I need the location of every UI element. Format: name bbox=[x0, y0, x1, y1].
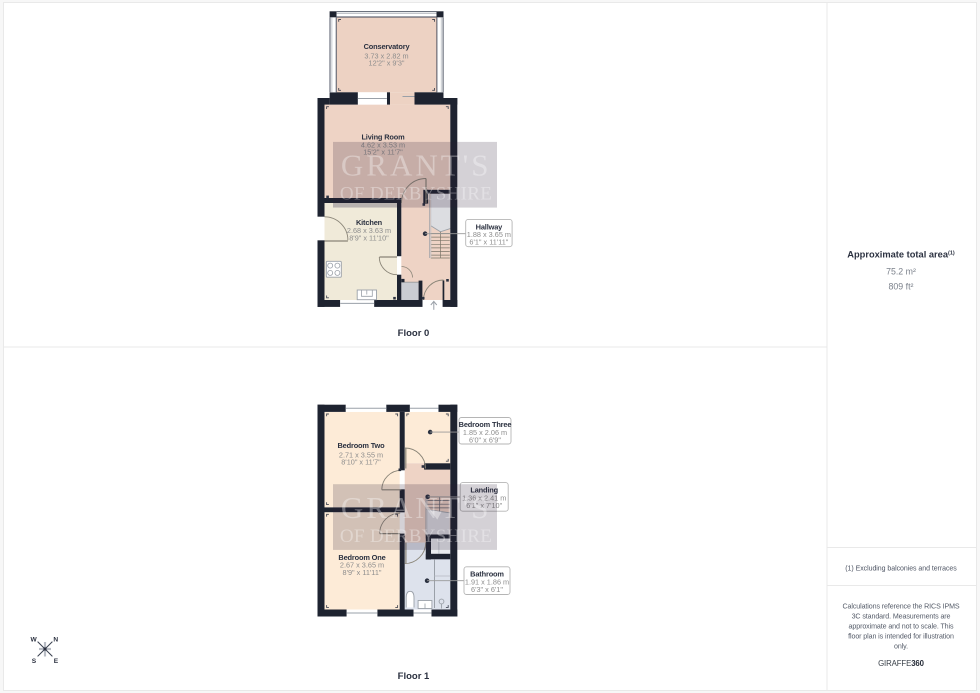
svg-text:3C standard. Measurements are: 3C standard. Measurements are bbox=[852, 612, 951, 620]
svg-text:Floor 0: Floor 0 bbox=[398, 328, 430, 339]
svg-text:only.: only. bbox=[894, 643, 908, 651]
svg-text:Floor 1: Floor 1 bbox=[398, 671, 430, 682]
svg-text:S: S bbox=[32, 658, 37, 665]
svg-text:8'9" x 11'11": 8'9" x 11'11" bbox=[343, 568, 382, 577]
svg-text:12'2" x 9'3": 12'2" x 9'3" bbox=[369, 59, 405, 68]
svg-text:W: W bbox=[30, 636, 37, 643]
svg-text:8'10" x 11'7": 8'10" x 11'7" bbox=[341, 458, 381, 467]
svg-text:809 ft²: 809 ft² bbox=[889, 282, 914, 292]
svg-text:(1) Excluding balconies and te: (1) Excluding balconies and terraces bbox=[845, 565, 957, 572]
svg-text:Calculations reference the RIC: Calculations reference the RICS IPMS bbox=[842, 602, 959, 610]
svg-text:6'0" x 6'9": 6'0" x 6'9" bbox=[469, 435, 501, 444]
svg-text:GRANT'S: GRANT'S bbox=[341, 490, 492, 525]
svg-text:6'3" x 6'1": 6'3" x 6'1" bbox=[471, 585, 503, 594]
svg-text:Conservatory: Conservatory bbox=[364, 42, 411, 51]
svg-text:75.2 m²: 75.2 m² bbox=[886, 267, 916, 277]
svg-text:OF DERBYSHIRE: OF DERBYSHIRE bbox=[340, 526, 492, 547]
svg-text:GRANT'S: GRANT'S bbox=[341, 148, 492, 183]
svg-text:6'1" x 11'11": 6'1" x 11'11" bbox=[469, 237, 508, 246]
svg-text:N: N bbox=[53, 636, 58, 643]
svg-text:Bedroom Two: Bedroom Two bbox=[337, 441, 385, 450]
svg-text:E: E bbox=[54, 658, 59, 665]
svg-text:floor plan is intended for ill: floor plan is intended for illustration bbox=[848, 633, 954, 641]
svg-text:Approximate total area(1): Approximate total area(1) bbox=[847, 250, 955, 260]
svg-text:approximate and not to scale.: approximate and not to scale. This bbox=[849, 623, 954, 631]
svg-text:GIRAFFE360: GIRAFFE360 bbox=[878, 659, 925, 668]
svg-text:8'9" x 11'10": 8'9" x 11'10" bbox=[349, 234, 389, 243]
svg-text:OF DERBYSHIRE: OF DERBYSHIRE bbox=[340, 184, 492, 205]
